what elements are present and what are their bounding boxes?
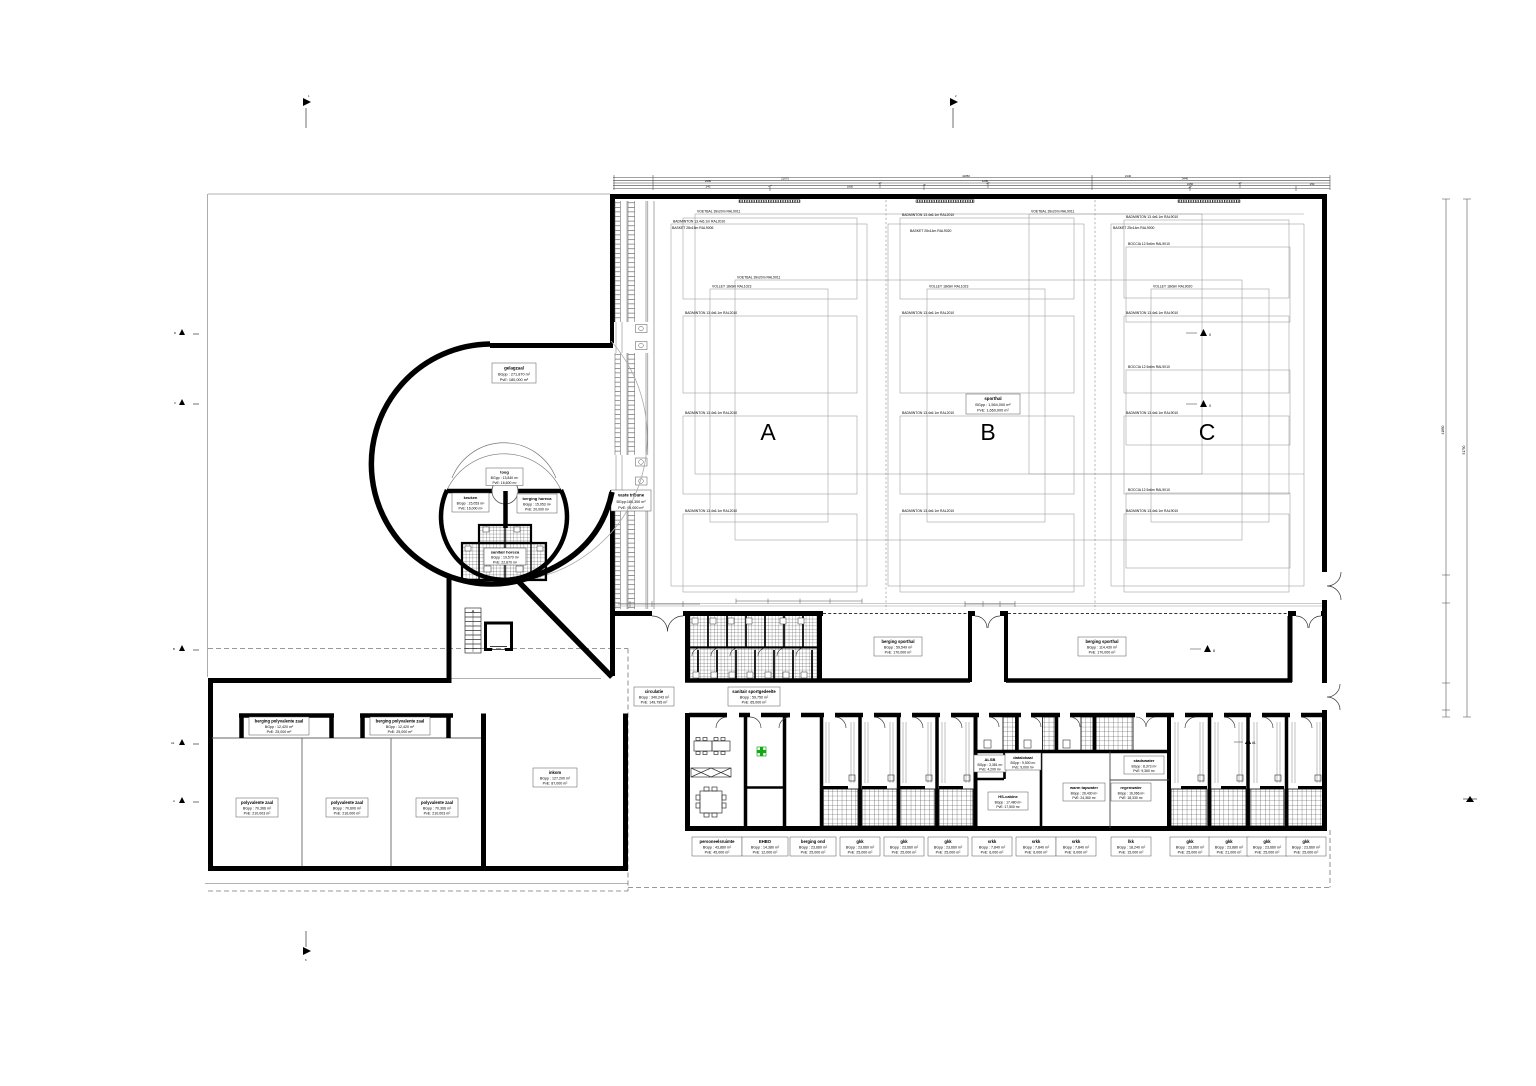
svg-text:BGpp : 23,660 m²: BGpp : 23,660 m² — [890, 846, 919, 850]
svg-text:HS-cabine: HS-cabine — [998, 794, 1018, 799]
svg-text:VOETBAL 39x20m RAL9011: VOETBAL 39x20m RAL9011 — [697, 210, 740, 214]
svg-text:berging ond: berging ond — [801, 839, 826, 844]
svg-text:datalokaal: datalokaal — [1013, 755, 1033, 760]
svg-text:2400: 2400 — [705, 179, 712, 183]
svg-text:sporthal: sporthal — [984, 396, 1001, 401]
svg-text:A: A — [173, 799, 175, 803]
svg-text:VOLLEY 18x9m RAL9020: VOLLEY 18x9m RAL9020 — [1153, 285, 1192, 289]
svg-text:BGpp : 12,420 m²: BGpp : 12,420 m² — [386, 725, 415, 729]
svg-text:PvE: 17,500 m²: PvE: 17,500 m² — [996, 805, 1020, 809]
svg-text:PvE: 12,000 m²: PvE: 12,000 m² — [753, 851, 779, 855]
svg-text:PvE: 6,000 m²: PvE: 6,000 m² — [1025, 851, 1049, 855]
svg-text:PvE: 170,000 m²: PvE: 170,000 m² — [885, 651, 913, 655]
svg-text:B: B — [980, 419, 995, 445]
svg-text:gkk: gkk — [900, 839, 908, 844]
svg-text:BGpp : 17,480 m²: BGpp : 17,480 m² — [995, 801, 1023, 805]
svg-text:PvE: 22,870 m²: PvE: 22,870 m² — [493, 561, 518, 565]
svg-text:BGpp : 12,420 m²: BGpp : 12,420 m² — [265, 725, 294, 729]
svg-text:BASKET 25x14m RAL9020: BASKET 25x14m RAL9020 — [910, 229, 952, 233]
svg-text:polyvalente zaal: polyvalente zaal — [241, 800, 273, 805]
svg-text:BGpp : 127,200 m²: BGpp : 127,200 m² — [540, 777, 571, 781]
svg-text:berging sporthal: berging sporthal — [881, 639, 914, 644]
svg-text:PvE: 16,600 m²: PvE: 16,600 m² — [492, 481, 517, 485]
svg-text:PvE: 180,000 m²: PvE: 180,000 m² — [500, 378, 529, 382]
svg-text:51750: 51750 — [1462, 445, 1466, 454]
svg-text:warm tapwater: warm tapwater — [1069, 785, 1098, 790]
svg-text:PvE: 9,360 m²: PvE: 9,360 m² — [1133, 769, 1155, 773]
svg-text:BGpp : 7,840 m²: BGpp : 7,840 m² — [1063, 846, 1090, 850]
svg-text:PvE: 25,000 m²: PvE: 25,000 m² — [892, 851, 918, 855]
svg-text:BGpp : 23,660 m²: BGpp : 23,660 m² — [1292, 846, 1321, 850]
svg-text:3150: 3150 — [1187, 182, 1194, 186]
svg-text:PvE: 65,000 m²: PvE: 65,000 m² — [742, 701, 768, 705]
svg-text:41850: 41850 — [1441, 425, 1445, 434]
svg-text:PvE: 9,000 m²: PvE: 9,000 m² — [1012, 766, 1034, 770]
svg-text:BADMINTON 13.4x6.1m RAL2010: BADMINTON 13.4x6.1m RAL2010 — [685, 411, 737, 415]
svg-text:BGpp : 3,381 m²: BGpp : 3,381 m² — [978, 763, 1004, 767]
svg-text:PvE: 149,795 m²: PvE: 149,795 m² — [641, 701, 669, 705]
svg-text:BGpp : 271,870 m²: BGpp : 271,870 m² — [498, 373, 531, 377]
svg-text:BGpp : 9,500 m²: BGpp : 9,500 m² — [1011, 761, 1037, 765]
svg-text:VOETBAL 39x20m RAL9011: VOETBAL 39x20m RAL9011 — [737, 276, 780, 280]
svg-text:polyvalente zaal: polyvalente zaal — [331, 800, 363, 805]
svg-text:D: D — [174, 331, 176, 335]
svg-text:BGpp : 8,373 m²: BGpp : 8,373 m² — [1132, 765, 1158, 769]
svg-text:berging sporthal: berging sporthal — [1085, 639, 1118, 644]
svg-text:BGpp : 16,066 m²: BGpp : 16,066 m² — [1118, 792, 1146, 796]
svg-text:BGpp : 23,660 m²: BGpp : 23,660 m² — [1253, 846, 1282, 850]
svg-text:BOCCIA 12.5x6m RAL9010: BOCCIA 12.5x6m RAL9010 — [1128, 488, 1170, 492]
svg-text:polyvalente zaal: polyvalente zaal — [421, 800, 453, 805]
svg-text:PvE: 6,000 m²: PvE: 6,000 m² — [1065, 851, 1089, 855]
svg-text:gkk: gkk — [1263, 839, 1271, 844]
svg-text:BADMINTON 13.4x6.1m RAL2010: BADMINTON 13.4x6.1m RAL2010 — [902, 213, 954, 217]
svg-text:VOLLEY 18x9m RAL1023: VOLLEY 18x9m RAL1023 — [929, 285, 968, 289]
svg-text:1850: 1850 — [847, 185, 854, 189]
svg-text:regenwater: regenwater — [1120, 785, 1142, 790]
svg-text:PvE: 21,000 m²: PvE: 21,000 m² — [1217, 851, 1243, 855]
svg-text:BGpp : 7,840 m²: BGpp : 7,840 m² — [979, 846, 1006, 850]
svg-text:PvE: 16,000 m²: PvE: 16,000 m² — [458, 507, 483, 511]
svg-text:sanitair horeca: sanitair horeca — [491, 550, 520, 555]
svg-text:PvE: 25,000 m²: PvE: 25,000 m² — [388, 730, 414, 734]
svg-text:PvE: 87,000 m²: PvE: 87,000 m² — [543, 782, 569, 786]
svg-text:BGpp : 43,860 m²: BGpp : 43,860 m² — [703, 846, 732, 850]
svg-text:BGpp : 23,660 m²: BGpp : 23,660 m² — [1176, 846, 1205, 850]
svg-text:41850: 41850 — [962, 174, 970, 178]
svg-text:personeelsruimte: personeelsruimte — [700, 839, 736, 844]
svg-text:BGpp : 70,600 m²: BGpp : 70,600 m² — [333, 807, 362, 811]
svg-text:PvE: 98,000 m²: PvE: 98,000 m² — [618, 506, 644, 510]
svg-text:PvE: 25,000 m²: PvE: 25,000 m² — [1294, 851, 1320, 855]
svg-text:BGpp : 13,840 m²: BGpp : 13,840 m² — [491, 476, 519, 480]
svg-text:BGpp : 114,430 m²: BGpp : 114,430 m² — [1087, 646, 1118, 650]
svg-text:BGpp : 7,840 m²: BGpp : 7,840 m² — [1023, 846, 1050, 850]
svg-text:BGpp : 70,366 m²: BGpp : 70,366 m² — [423, 807, 452, 811]
svg-text:PvE: 45,000 m²: PvE: 45,000 m² — [705, 851, 731, 855]
svg-text:2140: 2140 — [1125, 174, 1132, 178]
svg-text:B: B — [173, 647, 175, 651]
svg-text:PvE: 25,000 m²: PvE: 25,000 m² — [936, 851, 962, 855]
svg-text:ALSB: ALSB — [985, 757, 996, 762]
svg-text:gkk: gkk — [856, 839, 864, 844]
svg-text:150: 150 — [1310, 182, 1315, 186]
svg-text:PvE: 25,000 m²: PvE: 25,000 m² — [1178, 851, 1204, 855]
svg-text:BGpp : 19,570 m²: BGpp : 19,570 m² — [491, 556, 519, 560]
svg-text:BGpp : 14,380 m²: BGpp : 14,380 m² — [751, 846, 780, 850]
svg-text:PvE: 4,209 m²: PvE: 4,209 m² — [979, 768, 1001, 772]
svg-text:BGpp : 1,564,000 m²: BGpp : 1,564,000 m² — [975, 403, 1011, 407]
svg-text:vaste tribune: vaste tribune — [618, 493, 645, 498]
svg-text:BGpp : 59,750 m²: BGpp : 59,750 m² — [740, 696, 769, 700]
svg-text:BADMINTON 13.4x6.1m RAL2010: BADMINTON 13.4x6.1m RAL2010 — [685, 311, 737, 315]
svg-text:inkom: inkom — [549, 770, 562, 775]
svg-text:EHBO: EHBO — [759, 839, 772, 844]
svg-text:BADMINTON 13.4x6.1m RAL2010: BADMINTON 13.4x6.1m RAL2010 — [902, 509, 954, 513]
svg-text:PvE: 210,003 m²: PvE: 210,003 m² — [424, 812, 452, 816]
svg-text:BADMINTON 13.4x6.1m RAL9010: BADMINTON 13.4x6.1m RAL9010 — [1126, 215, 1178, 219]
svg-text:lkk: lkk — [1128, 839, 1134, 844]
svg-text:toog: toog — [500, 470, 509, 475]
svg-text:PvE: 1,660,000 m²: PvE: 1,660,000 m² — [977, 409, 1009, 413]
svg-text:#1: #1 — [1252, 741, 1256, 745]
svg-text:gkk: gkk — [1302, 839, 1310, 844]
svg-text:BADMINTON 13.4x6.1m RAL9010: BADMINTON 13.4x6.1m RAL9010 — [1126, 411, 1178, 415]
svg-text:BGpp : 15,053 m²: BGpp : 15,053 m² — [523, 503, 551, 507]
svg-text:BGpp : 15,053 m²: BGpp : 15,053 m² — [457, 502, 485, 506]
svg-text:BGpp : 23,880 m²: BGpp : 23,880 m² — [1215, 846, 1244, 850]
svg-text:BGpp : 59,549 m²: BGpp : 59,549 m² — [884, 646, 913, 650]
svg-text:VOLLEY 18x9m RAL1023: VOLLEY 18x9m RAL1023 — [712, 285, 751, 289]
svg-text:A1: A1 — [171, 741, 175, 745]
svg-text:BGpp : 18,240 m²: BGpp : 18,240 m² — [1117, 846, 1146, 850]
svg-text:BGpp : 340,243 m²: BGpp : 340,243 m² — [639, 696, 670, 700]
svg-text:PvE: 210,003 m²: PvE: 210,003 m² — [244, 812, 272, 816]
svg-text:BADMINTON 13.4x6.1m RAL2010: BADMINTON 13.4x6.1m RAL2010 — [673, 220, 725, 224]
svg-text:srkk: srkk — [988, 839, 997, 844]
svg-text:sanitair sportgedeelte: sanitair sportgedeelte — [732, 689, 776, 694]
svg-text:PvE: 24,360 m²: PvE: 24,360 m² — [1072, 796, 1096, 800]
svg-text:gkk: gkk — [1186, 839, 1194, 844]
svg-text:1200: 1200 — [982, 179, 989, 183]
svg-text:srkk: srkk — [1032, 839, 1041, 844]
svg-text:C: C — [1199, 419, 1216, 445]
svg-text:berging polyvalente zaal: berging polyvalente zaal — [376, 719, 425, 724]
svg-text:PvE: 170,000 m²: PvE: 170,000 m² — [1089, 651, 1117, 655]
svg-text:BGpp : 23,660 m²: BGpp : 23,660 m² — [846, 846, 875, 850]
svg-text:VOETBAL 39x20m RAL9011: VOETBAL 39x20m RAL9011 — [1031, 210, 1074, 214]
svg-text:240: 240 — [706, 185, 711, 189]
svg-text:PvE: 6,000 m²: PvE: 6,000 m² — [981, 851, 1005, 855]
svg-text:BOCCIA 12.5x6m RAL9010: BOCCIA 12.5x6m RAL9010 — [1128, 242, 1170, 246]
svg-text:stadswater: stadswater — [1134, 758, 1155, 763]
svg-text:BGpp : 23,660 m²: BGpp : 23,660 m² — [934, 846, 963, 850]
svg-text:BASKET 25x14m RAL9000: BASKET 25x14m RAL9000 — [1113, 226, 1155, 230]
svg-text:BGpp : 23,660 m²: BGpp : 23,660 m² — [799, 846, 828, 850]
svg-text:gelagzaal: gelagzaal — [504, 366, 524, 371]
svg-text:BADMINTON 13.4x6.1m RAL2010: BADMINTON 13.4x6.1m RAL2010 — [902, 411, 954, 415]
svg-text:BADMINTON 13.4x6.1m RAL9010: BADMINTON 13.4x6.1m RAL9010 — [1126, 311, 1178, 315]
svg-text:C: C — [174, 401, 176, 405]
svg-text:BADMINTON 13.4x6.1m RAL9010: BADMINTON 13.4x6.1m RAL9010 — [1126, 509, 1178, 513]
svg-text:berging horeca: berging horeca — [523, 496, 553, 501]
svg-text:PvE: 20,000 m²: PvE: 20,000 m² — [525, 508, 550, 512]
svg-text:PvE: 216,000 m²: PvE: 216,000 m² — [334, 812, 362, 816]
svg-text:A: A — [760, 419, 776, 445]
svg-text:0: 0 — [1209, 333, 1211, 337]
svg-text:gkk: gkk — [944, 839, 952, 844]
svg-text:PvE: 25,000 m²: PvE: 25,000 m² — [801, 851, 827, 855]
svg-text:BGpp : 26,430 m²: BGpp : 26,430 m² — [1071, 792, 1099, 796]
svg-text:BADMINTON 13.4x6.1m RAL2010: BADMINTON 13.4x6.1m RAL2010 — [902, 311, 954, 315]
svg-text:PvE: 15,000 m²: PvE: 15,000 m² — [1119, 851, 1145, 855]
svg-text:berging polyvalente zaal: berging polyvalente zaal — [255, 719, 304, 724]
svg-text:21675: 21675 — [781, 177, 789, 181]
svg-text:8: 8 — [1213, 649, 1215, 653]
svg-text:keuken: keuken — [464, 495, 478, 500]
svg-text:PvE: 25,000 m²: PvE: 25,000 m² — [267, 730, 293, 734]
svg-text:gkk: gkk — [1225, 839, 1233, 844]
svg-text:BASKET 28x15m RAL9006: BASKET 28x15m RAL9006 — [672, 226, 714, 230]
svg-text:BADMINTON 13.4x6.1m RAL2010: BADMINTON 13.4x6.1m RAL2010 — [685, 509, 737, 513]
svg-text:PvE: 18,330 m²: PvE: 18,330 m² — [1119, 796, 1143, 800]
svg-text:circulatie: circulatie — [645, 689, 664, 694]
svg-text:PvE: 25,000 m²: PvE: 25,000 m² — [848, 851, 874, 855]
svg-text:BGpp : 70,366 m²: BGpp : 70,366 m² — [243, 807, 272, 811]
svg-text:0: 0 — [1209, 404, 1211, 408]
svg-text:BOCCIA 12.5x6m RAL9010: BOCCIA 12.5x6m RAL9010 — [1128, 365, 1170, 369]
svg-text:srkk: srkk — [1072, 839, 1081, 844]
svg-text:3440: 3440 — [1182, 177, 1189, 181]
svg-text:PvE: 25,000 m²: PvE: 25,000 m² — [1255, 851, 1281, 855]
